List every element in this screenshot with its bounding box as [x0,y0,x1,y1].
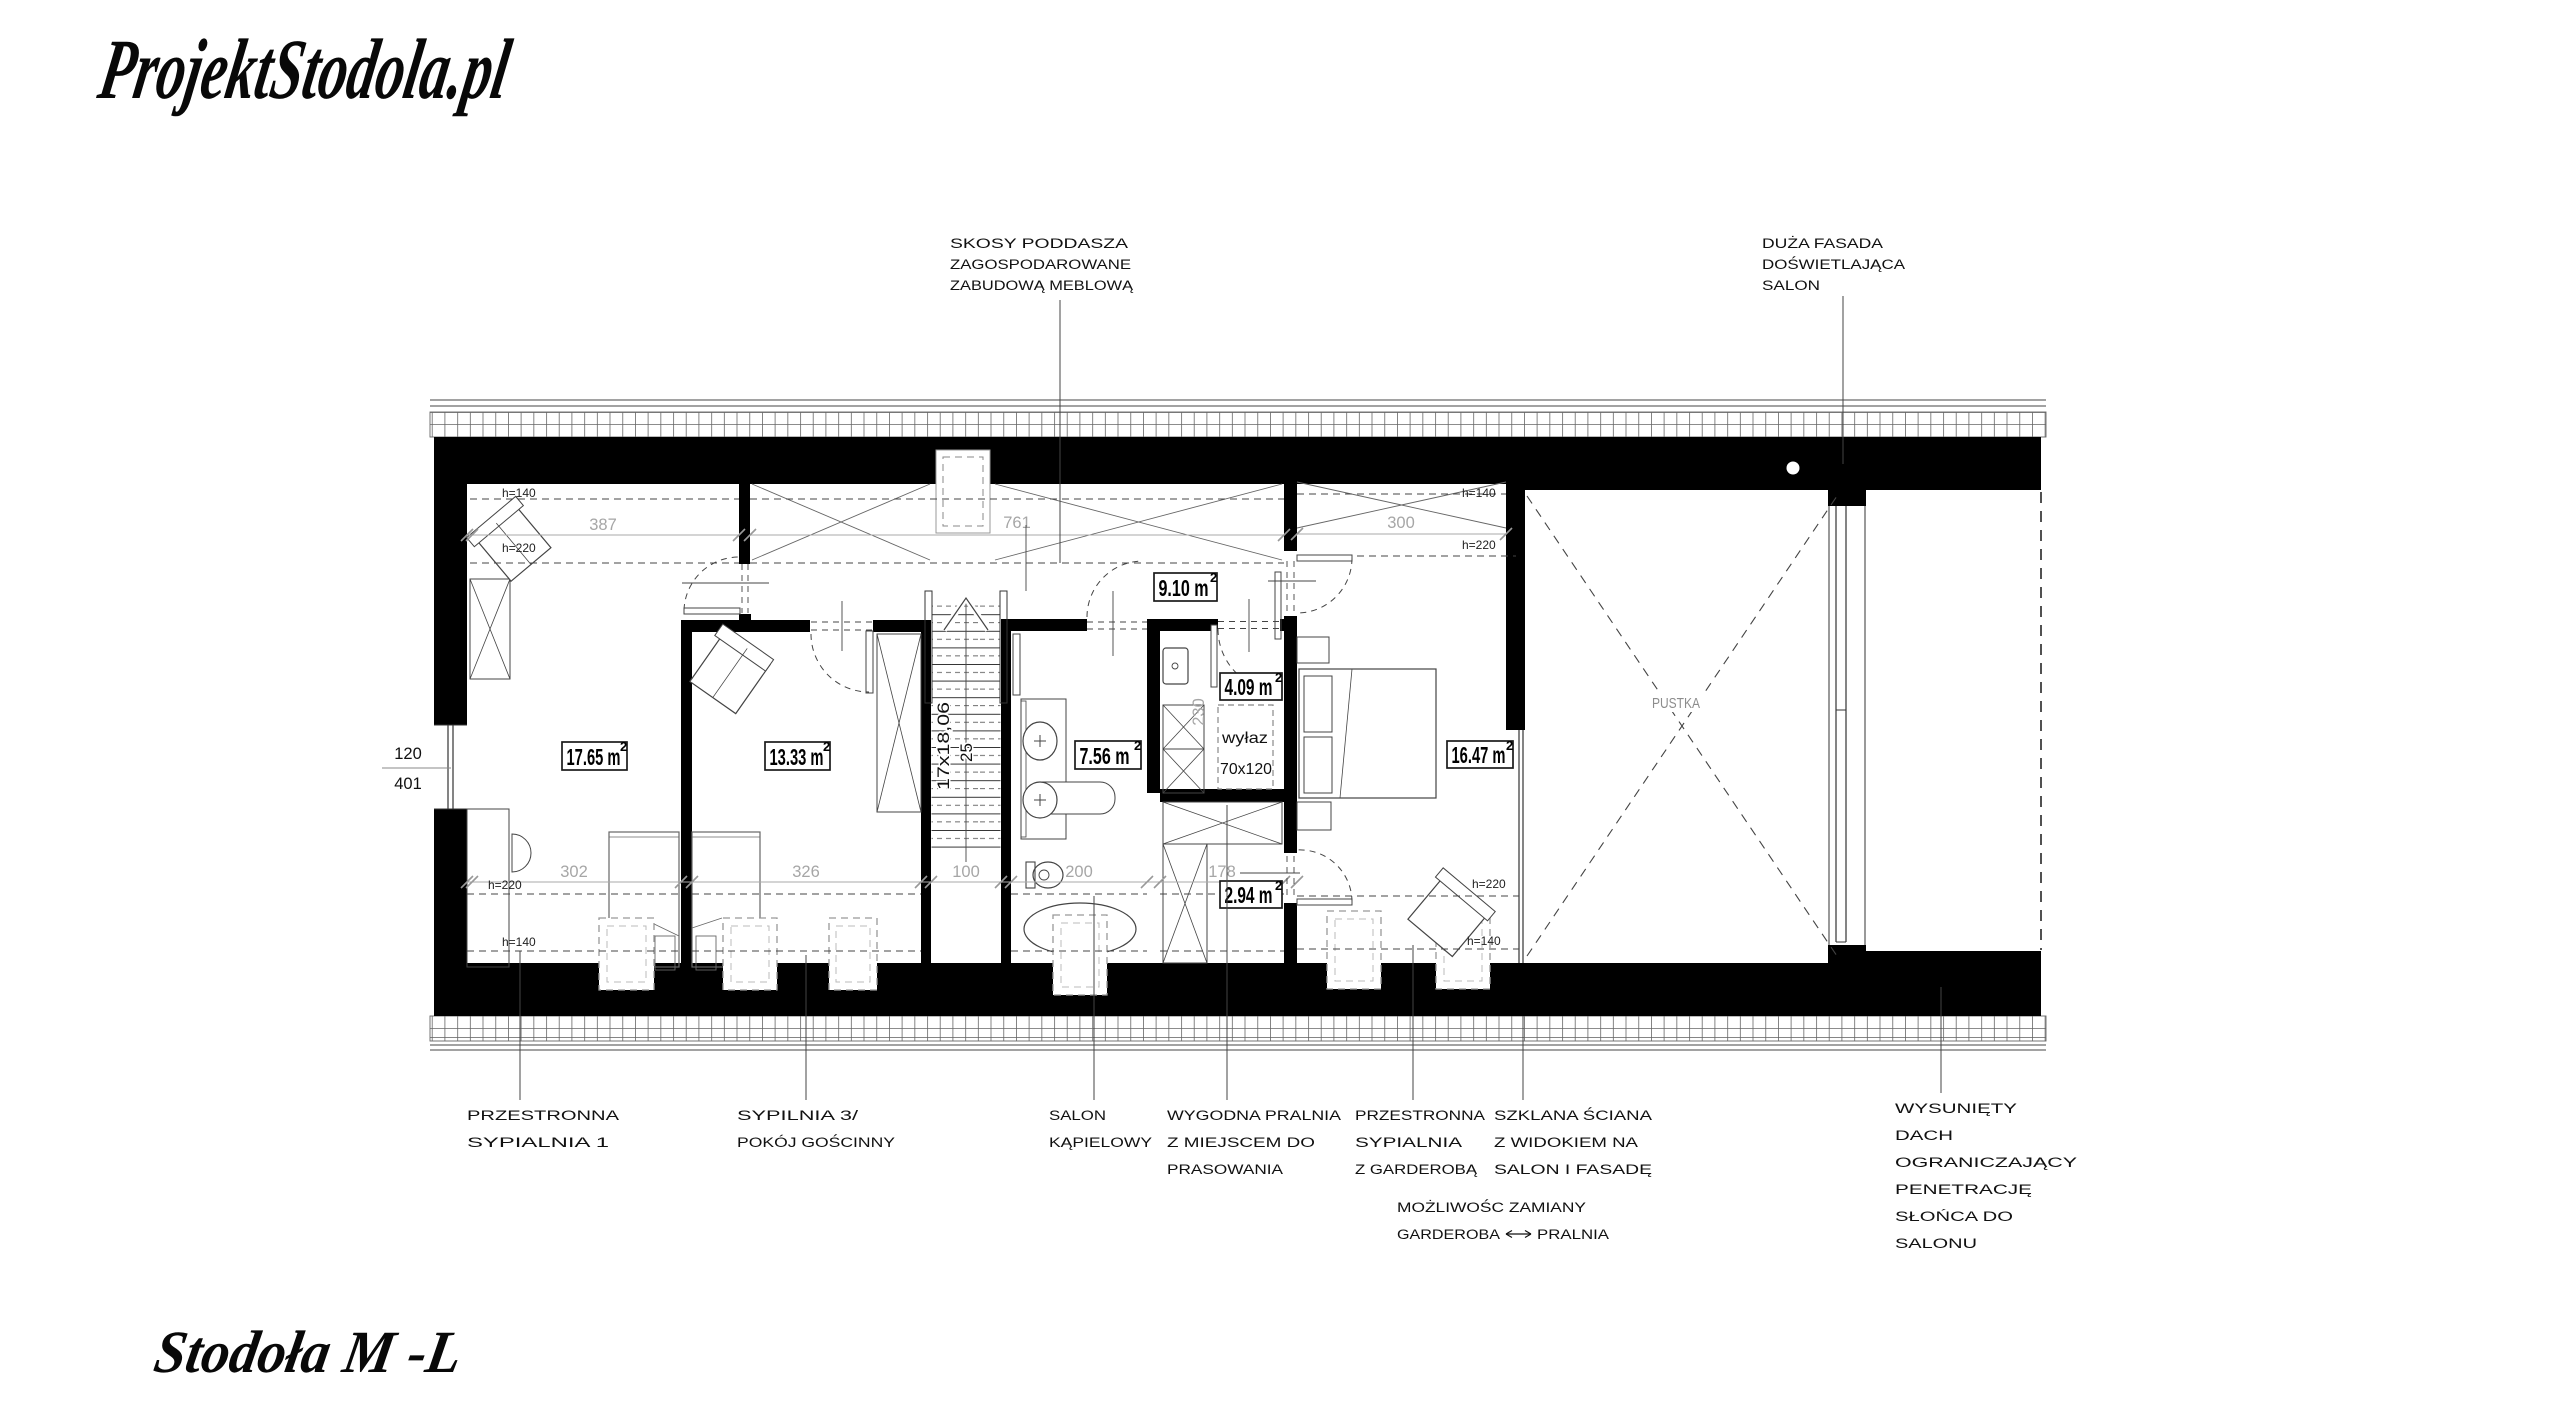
svg-text:16.47 m: 16.47 m [1452,742,1506,768]
svg-text:SALON: SALON [1049,1108,1106,1123]
svg-text:SYPILNIA 3/: SYPILNIA 3/ [737,1108,858,1123]
svg-text:401: 401 [394,775,422,793]
svg-text:2: 2 [1210,570,1217,585]
svg-text:SYPIALNIA 1: SYPIALNIA 1 [467,1135,609,1150]
svg-text:Stodoła M -L: Stodoła M -L [150,1319,468,1385]
svg-text:WYGODNA PRALNIA: WYGODNA PRALNIA [1167,1108,1341,1123]
svg-text:302: 302 [560,863,588,881]
svg-text:200: 200 [1065,863,1093,881]
svg-text:WYSUNIĘTY: WYSUNIĘTY [1895,1101,2017,1116]
svg-text:PRALNIA: PRALNIA [1537,1227,1609,1242]
svg-text:4.09 m: 4.09 m [1225,674,1273,700]
svg-text:h=140: h=140 [1462,486,1496,500]
svg-text:h=140: h=140 [1467,934,1501,948]
svg-text:Z WIDOKIEM NA: Z WIDOKIEM NA [1494,1135,1638,1150]
svg-text:PUSTKA: PUSTKA [1652,696,1700,712]
svg-text:h=220: h=220 [1472,877,1506,891]
svg-text:PRZESTRONNA: PRZESTRONNA [1355,1108,1485,1123]
svg-text:2: 2 [823,739,830,754]
svg-text:SZKLANA ŚCIANA: SZKLANA ŚCIANA [1494,1108,1652,1123]
svg-text:387: 387 [589,516,617,534]
svg-text:ZABUDOWĄ MEBLOWĄ: ZABUDOWĄ MEBLOWĄ [950,278,1134,293]
svg-text:h=140: h=140 [502,486,536,500]
svg-text:17x18,06: 17x18,06 [934,702,953,790]
svg-text:SALONU: SALONU [1895,1236,1977,1251]
svg-text:ProjektStodola.pl: ProjektStodola.pl [92,22,517,117]
svg-text:230: 230 [1190,698,1208,726]
svg-text:ZAGOSPODAROWANE: ZAGOSPODAROWANE [950,257,1131,272]
svg-text:2: 2 [1506,738,1513,753]
svg-text:GARDEROBA: GARDEROBA [1397,1227,1500,1242]
svg-text:DUŻA FASADA: DUŻA FASADA [1762,236,1883,251]
svg-text:761: 761 [1003,514,1031,532]
svg-text:178: 178 [1208,863,1236,881]
svg-text:300: 300 [1387,514,1415,532]
svg-text:DACH: DACH [1895,1128,1953,1143]
svg-text:PRASOWANIA: PRASOWANIA [1167,1162,1283,1177]
svg-text:7.56 m: 7.56 m [1080,743,1130,769]
svg-text:2.94 m: 2.94 m [1225,882,1273,908]
svg-text:KĄPIELOWY: KĄPIELOWY [1049,1135,1152,1150]
svg-text:100: 100 [952,863,980,881]
svg-text:SŁOŃCA DO: SŁOŃCA DO [1895,1209,2013,1224]
svg-text:70x120: 70x120 [1220,761,1272,778]
svg-text:25: 25 [957,743,976,762]
svg-text:PRZESTRONNA: PRZESTRONNA [467,1108,619,1123]
svg-text:2: 2 [1275,878,1282,893]
svg-text:h=220: h=220 [488,878,522,892]
svg-text:MOŻLIWOŚC ZAMIANY: MOŻLIWOŚC ZAMIANY [1397,1200,1586,1215]
svg-text:2: 2 [1275,670,1282,685]
svg-text:13.33 m: 13.33 m [770,744,824,770]
svg-text:wyłaz: wyłaz [1221,730,1268,747]
svg-text:h=140: h=140 [502,935,536,949]
svg-text:POKÓJ GOŚCINNY: POKÓJ GOŚCINNY [737,1135,895,1150]
svg-text:SALON I FASADĘ: SALON I FASADĘ [1494,1162,1652,1177]
svg-text:326: 326 [792,863,820,881]
svg-text:h=220: h=220 [502,541,536,555]
svg-text:SYPIALNIA: SYPIALNIA [1355,1135,1462,1150]
svg-text:9.10 m: 9.10 m [1159,575,1209,601]
svg-text:PENETRACJĘ: PENETRACJĘ [1895,1182,2032,1197]
svg-text:SKOSY PODDASZA: SKOSY PODDASZA [950,236,1128,251]
svg-text:OGRANICZAJĄCY: OGRANICZAJĄCY [1895,1155,2077,1170]
svg-text:SALON: SALON [1762,278,1820,293]
svg-text:h=220: h=220 [1462,538,1496,552]
svg-text:120: 120 [394,745,422,763]
svg-text:Z GARDEROBĄ: Z GARDEROBĄ [1355,1162,1478,1177]
svg-text:DOŚWIETLAJĄCA: DOŚWIETLAJĄCA [1762,257,1905,272]
svg-text:Z MIEJSCEM DO: Z MIEJSCEM DO [1167,1135,1315,1150]
svg-text:2: 2 [620,739,627,754]
svg-text:17.65 m: 17.65 m [567,744,621,770]
svg-text:2: 2 [1134,738,1141,753]
